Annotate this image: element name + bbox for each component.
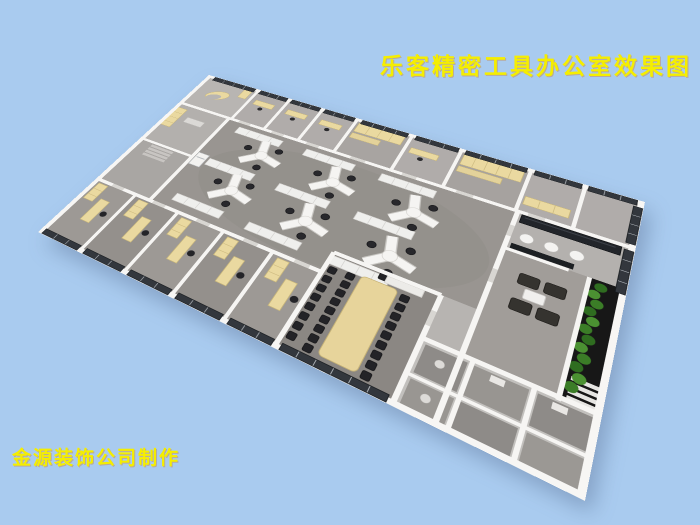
floor-plan-render [38, 75, 645, 501]
credit-text: 金源装饰公司制作 [12, 443, 180, 470]
floor-plan-svg [38, 75, 645, 501]
title-text: 乐客精密工具办公室效果图 [380, 47, 692, 81]
scene: 乐客精密工具办公室效果图 金源装饰公司制作 [0, 0, 700, 525]
